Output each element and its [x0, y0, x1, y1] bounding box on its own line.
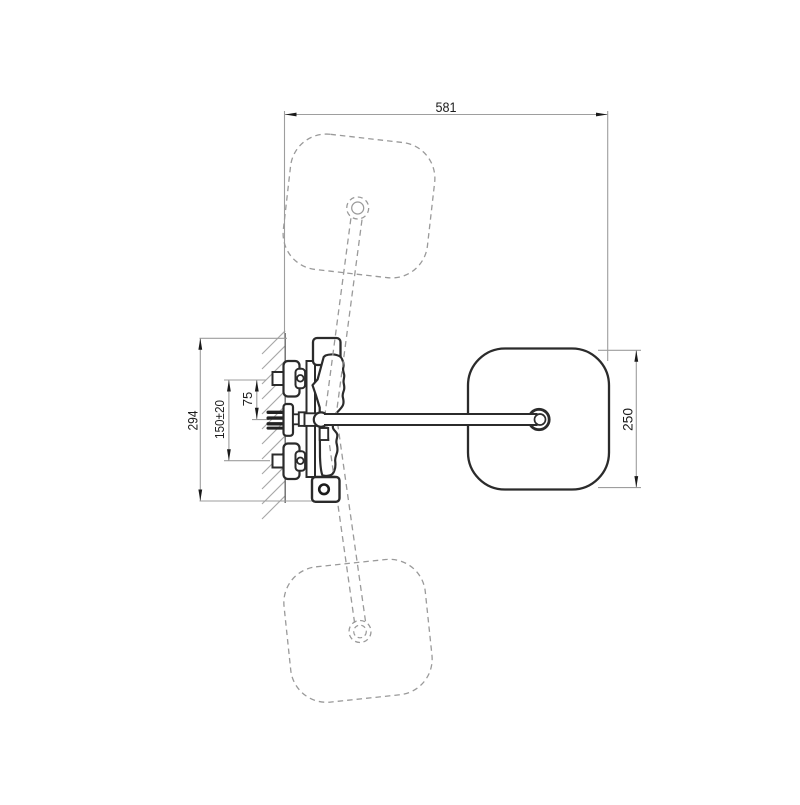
svg-text:150±20: 150±20	[212, 400, 227, 439]
svg-text:581: 581	[436, 99, 457, 115]
svg-text:294: 294	[186, 410, 201, 430]
svg-text:250: 250	[621, 408, 636, 431]
svg-text:75: 75	[240, 392, 255, 406]
